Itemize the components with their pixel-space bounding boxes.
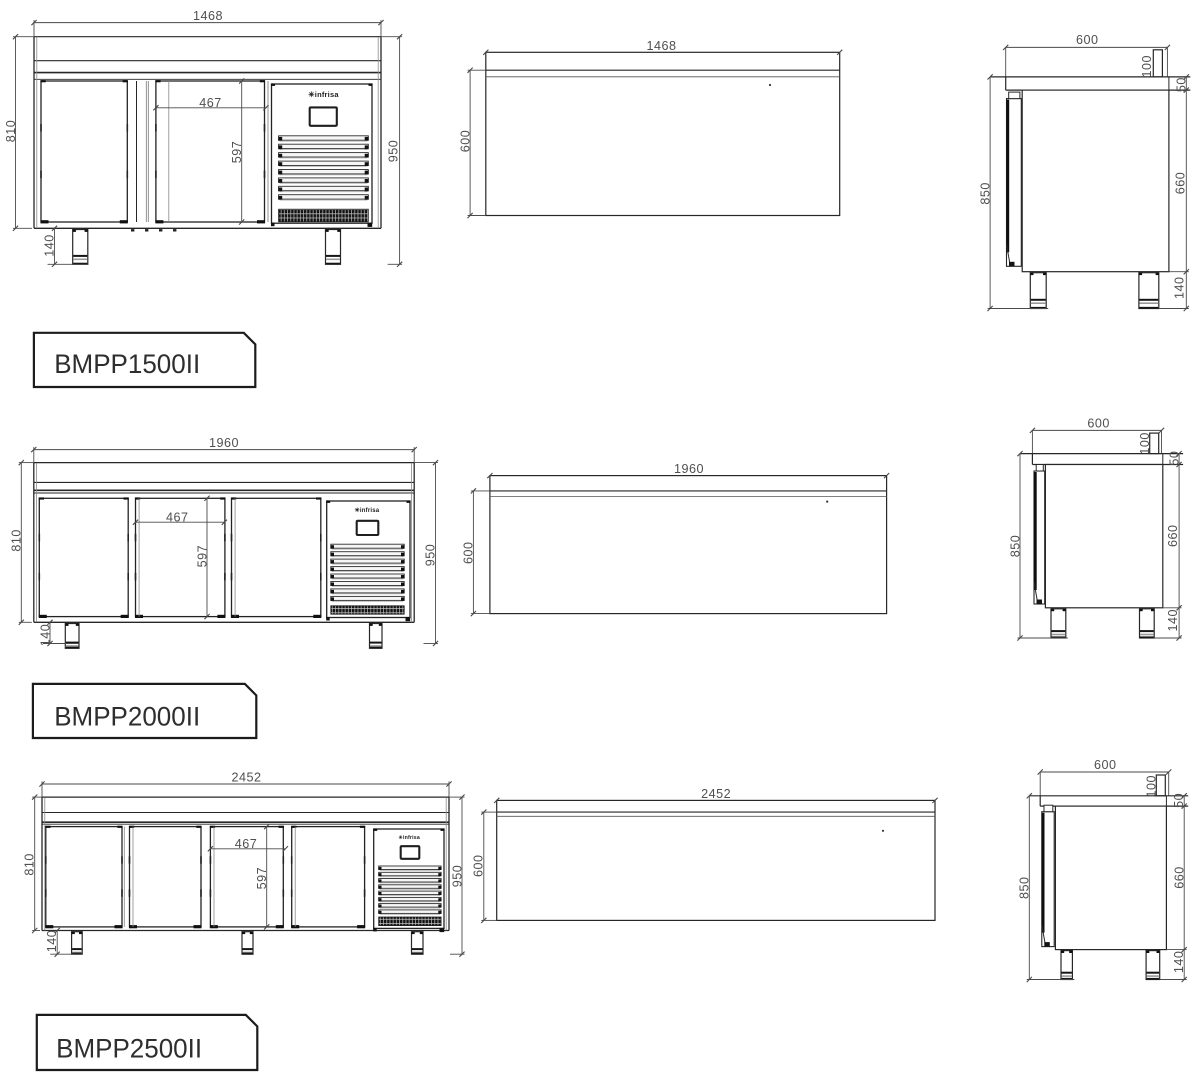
svg-text:2452: 2452 (701, 787, 731, 801)
svg-text:597: 597 (195, 545, 209, 568)
svg-text:810: 810 (4, 120, 18, 143)
svg-text:850: 850 (1018, 876, 1032, 899)
svg-text:810: 810 (10, 529, 24, 552)
svg-text:140: 140 (1173, 277, 1187, 300)
svg-text:140: 140 (45, 930, 59, 953)
svg-text:950: 950 (424, 544, 438, 567)
svg-text:✳infrisa: ✳infrisa (398, 835, 420, 841)
svg-text:140: 140 (38, 624, 52, 647)
svg-text:660: 660 (1166, 524, 1180, 547)
svg-text:467: 467 (235, 837, 258, 851)
svg-text:810: 810 (23, 853, 37, 876)
svg-text:467: 467 (166, 511, 189, 525)
svg-text:597: 597 (255, 867, 269, 890)
svg-text:50: 50 (1167, 451, 1181, 466)
svg-text:850: 850 (1009, 535, 1023, 558)
svg-text:1960: 1960 (674, 462, 704, 476)
svg-text:600: 600 (471, 855, 485, 878)
svg-text:597: 597 (230, 141, 244, 164)
svg-text:50: 50 (1172, 793, 1186, 808)
svg-text:600: 600 (462, 542, 476, 565)
svg-text:600: 600 (1076, 33, 1099, 47)
svg-text:600: 600 (1094, 758, 1117, 772)
svg-text:140: 140 (1166, 609, 1180, 632)
svg-text:1468: 1468 (193, 9, 223, 23)
svg-text:100: 100 (1140, 55, 1154, 78)
svg-text:660: 660 (1173, 866, 1187, 889)
svg-text:100: 100 (1138, 432, 1152, 455)
svg-text:660: 660 (1174, 172, 1188, 195)
svg-text:✳infrisa: ✳infrisa (355, 507, 380, 514)
svg-text:600: 600 (458, 130, 472, 153)
svg-text:850: 850 (978, 182, 992, 205)
svg-text:1468: 1468 (646, 39, 676, 53)
svg-text:BMPP2500II: BMPP2500II (56, 1033, 202, 1063)
svg-text:✳infrisa: ✳infrisa (308, 90, 339, 99)
svg-text:600: 600 (1087, 417, 1110, 431)
svg-text:950: 950 (451, 865, 465, 888)
svg-text:2452: 2452 (231, 771, 261, 785)
svg-text:140: 140 (1172, 951, 1186, 974)
svg-text:BMPP2000II: BMPP2000II (54, 701, 200, 731)
svg-text:BMPP1500II: BMPP1500II (54, 349, 200, 379)
svg-text:50: 50 (1174, 77, 1188, 92)
svg-text:140: 140 (43, 234, 57, 257)
svg-text:1960: 1960 (209, 436, 239, 450)
svg-text:467: 467 (199, 96, 222, 110)
svg-text:950: 950 (386, 140, 400, 163)
svg-text:100: 100 (1144, 775, 1158, 798)
